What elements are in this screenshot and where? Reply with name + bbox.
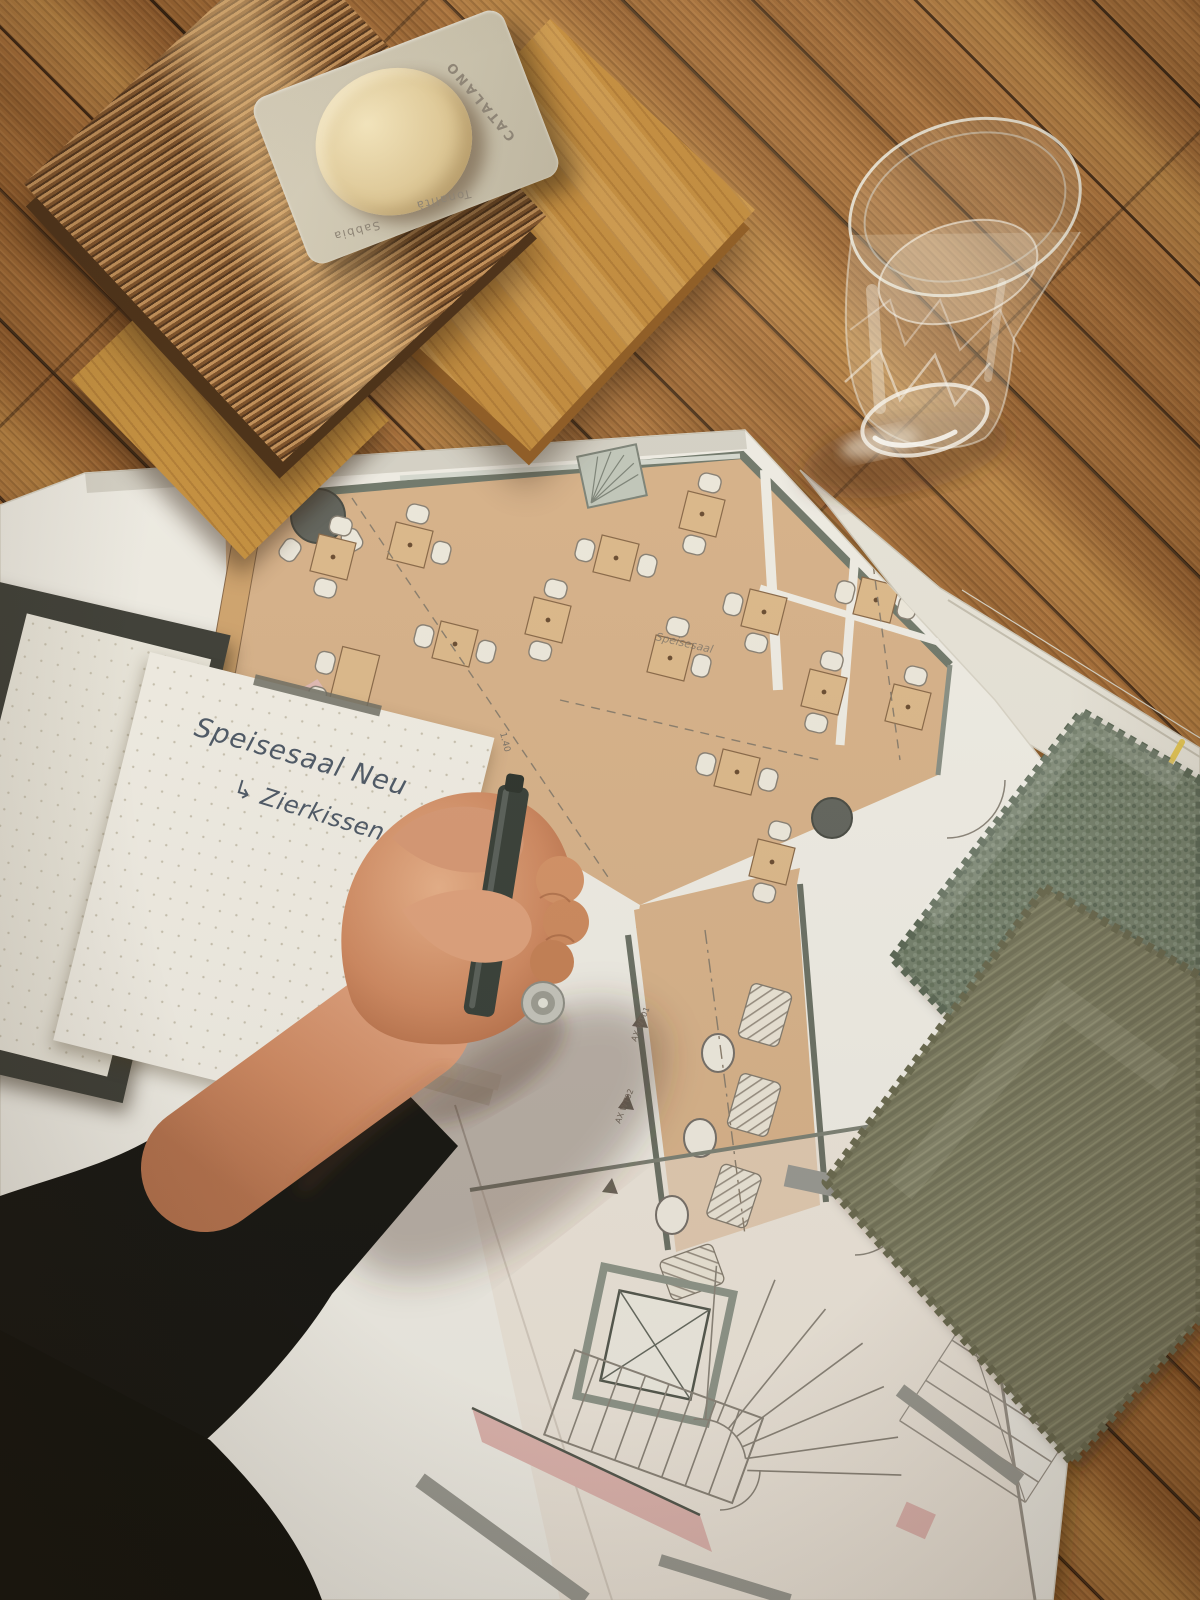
photo-canvas: Speisesaal 1.40 5.04 AX WT01 AX WT02 <box>0 0 1200 1600</box>
pen-cap <box>522 982 564 1024</box>
color-label: Sabbia <box>331 218 381 243</box>
